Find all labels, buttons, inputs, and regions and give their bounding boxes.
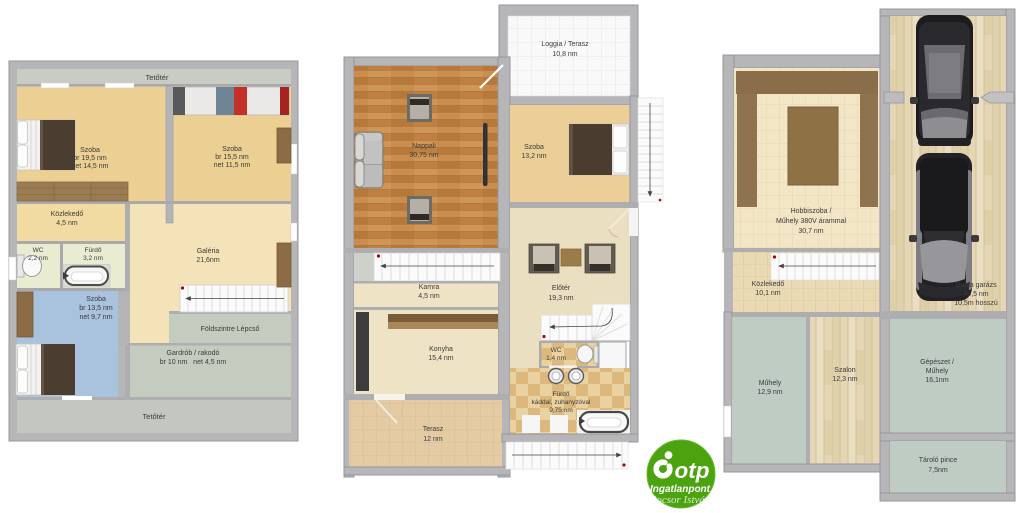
- svg-text:10,1 nm: 10,1 nm: [755, 290, 780, 297]
- svg-text:Fürdő: Fürdő: [85, 247, 102, 254]
- svg-text:40,5 nm: 40,5 nm: [963, 291, 988, 298]
- svg-text:Előtér: Előtér: [552, 285, 571, 292]
- svg-text:3,2 nm: 3,2 nm: [83, 255, 103, 262]
- svg-text:net 9,7 nm: net 9,7 nm: [79, 314, 112, 321]
- svg-text:9,75 nm: 9,75 nm: [549, 407, 573, 414]
- svg-text:br 10 nm net 4,5 nm: br 10 nm net 4,5 nm: [160, 359, 227, 366]
- svg-text:10,8 nm: 10,8 nm: [552, 51, 577, 58]
- svg-text:Gépészet /: Gépészet /: [920, 359, 954, 366]
- svg-text:Földszintre Lépcső: Földszintre Lépcső: [201, 326, 260, 333]
- svg-text:Szoba: Szoba: [222, 146, 242, 153]
- svg-text:2,2 nm: 2,2 nm: [28, 255, 48, 262]
- svg-text:7,5nm: 7,5nm: [928, 467, 948, 474]
- svg-text:WC: WC: [33, 247, 44, 254]
- svg-text:net 14,5 nm: net 14,5 nm: [72, 163, 109, 170]
- svg-text:Dupla garázs: Dupla garázs: [955, 282, 997, 289]
- svg-text:Terasz: Terasz: [423, 426, 444, 433]
- svg-text:12,3 nm: 12,3 nm: [832, 376, 857, 383]
- svg-text:Gardrób / rakodó: Gardrób / rakodó: [167, 350, 220, 357]
- svg-text:4,5 nm: 4,5 nm: [418, 293, 440, 300]
- svg-text:Loggia / Terasz: Loggia / Terasz: [541, 41, 589, 48]
- svg-text:WC: WC: [551, 347, 562, 354]
- svg-text:net 11,5 nm: net 11,5 nm: [214, 162, 251, 169]
- svg-text:Közlekedő: Közlekedő: [752, 281, 785, 288]
- svg-text:Műhely: Műhely: [926, 368, 949, 375]
- svg-text:Szalon: Szalon: [834, 367, 856, 374]
- svg-text:12,9 nm: 12,9 nm: [757, 389, 782, 396]
- svg-text:12 nm: 12 nm: [423, 436, 443, 443]
- svg-text:19,3 nm: 19,3 nm: [548, 295, 573, 302]
- svg-text:br 13,5 nm: br 13,5 nm: [79, 305, 113, 312]
- svg-text:Szoba: Szoba: [80, 147, 100, 154]
- svg-text:30,7 nm: 30,7 nm: [798, 228, 823, 235]
- svg-text:10,5m hosszú: 10,5m hosszú: [954, 300, 998, 307]
- svg-text:Kamra: Kamra: [419, 284, 440, 291]
- svg-text:Tetőtér: Tetőtér: [143, 412, 166, 421]
- svg-text:30,75 nm: 30,75 nm: [409, 152, 438, 159]
- svg-text:Közlekedő: Közlekedő: [51, 211, 84, 218]
- svg-text:Konyha: Konyha: [429, 346, 453, 353]
- svg-text:Fürdő: Fürdő: [553, 391, 570, 398]
- svg-text:Nappali: Nappali: [412, 143, 436, 150]
- svg-text:21,6nm: 21,6nm: [196, 257, 220, 264]
- svg-text:otp: otp: [675, 458, 710, 483]
- svg-text:Műhely 380V árammal: Műhely 380V árammal: [776, 218, 846, 225]
- svg-text:br 15,5 nm: br 15,5 nm: [215, 154, 249, 161]
- svg-text:Tároló pince: Tároló pince: [919, 457, 958, 464]
- svg-text:Hobbiszoba /: Hobbiszoba /: [791, 208, 832, 215]
- svg-text:Bocsor István: Bocsor István: [650, 494, 711, 506]
- svg-text:Szoba: Szoba: [86, 296, 106, 303]
- svg-text:4,5 nm: 4,5 nm: [56, 220, 78, 227]
- svg-text:15,4 nm: 15,4 nm: [428, 355, 453, 362]
- svg-text:br 19,5 nm: br 19,5 nm: [73, 155, 107, 162]
- svg-text:Tetőtér: Tetőtér: [146, 73, 169, 82]
- svg-text:1,4 nm: 1,4 nm: [546, 355, 566, 362]
- svg-text:Műhely: Műhely: [759, 380, 782, 387]
- svg-text:Galéria: Galéria: [197, 248, 220, 255]
- svg-text:Szoba: Szoba: [524, 144, 544, 151]
- svg-text:13,2 nm: 13,2 nm: [521, 153, 546, 160]
- svg-text:káddal, zuhanyzóval: káddal, zuhanyzóval: [532, 399, 591, 406]
- svg-text:16,1nm: 16,1nm: [925, 377, 949, 384]
